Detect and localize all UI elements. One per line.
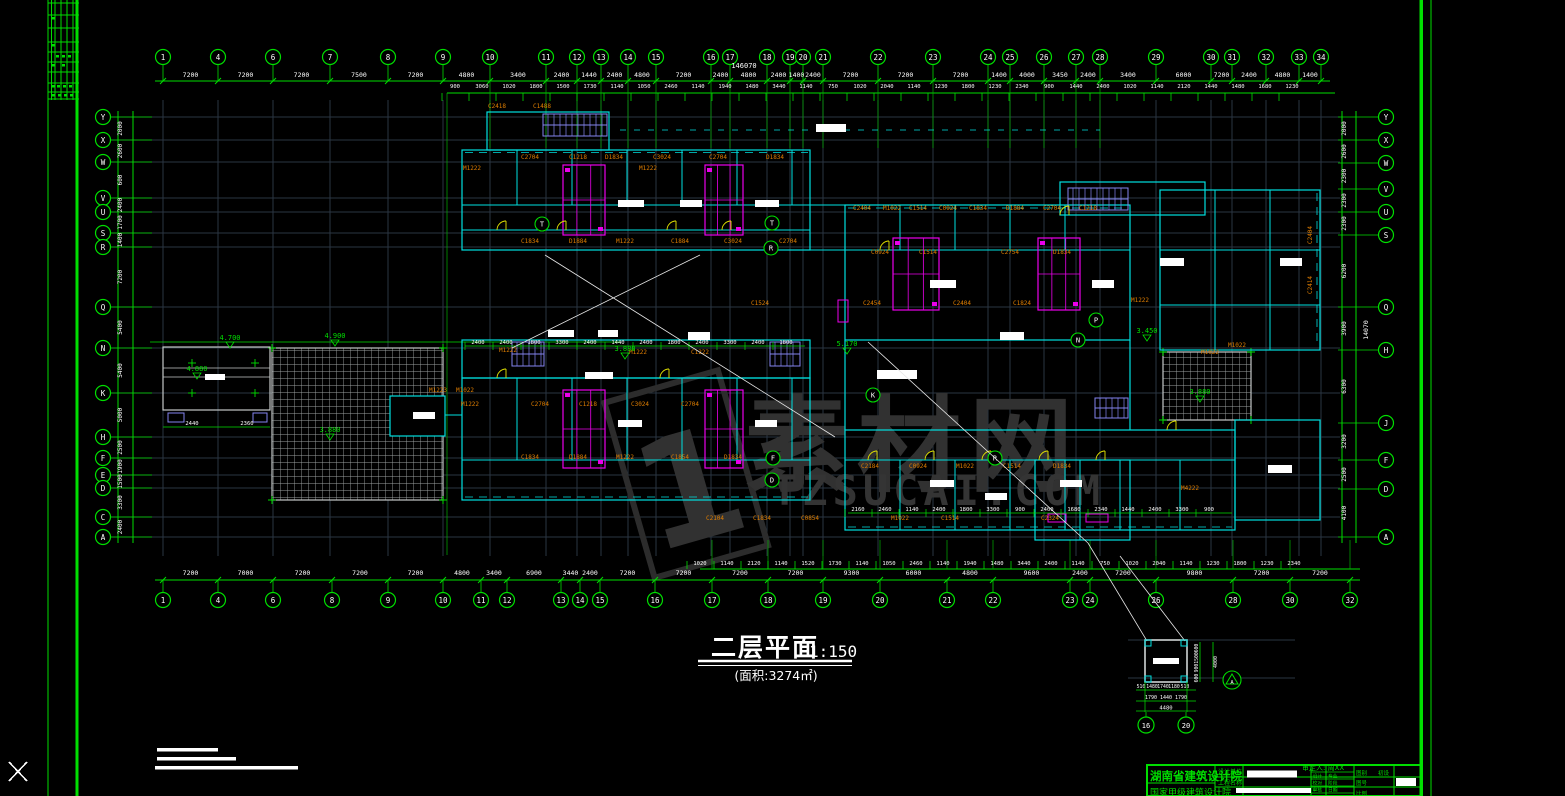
dim-text: 2400 [117,519,124,534]
dim-text: 2400 [607,71,623,79]
dim-text-small: 2440 [185,421,198,427]
door-window-label: M1022 [956,463,974,470]
dim-text: 4800 [459,71,475,79]
dim-text-small: 2400 [932,507,945,513]
dim-text: 2400 [117,197,124,212]
dim-text: 7200 [117,269,124,284]
door-window-label: C0854 [801,515,819,522]
level-mark-text: 3.880 [614,345,635,353]
dim-text: 1440 [581,71,597,79]
dim-text-small: 2340 [1287,561,1300,567]
door-window-label: M1222 [461,401,479,408]
plan-axis-bubble-label: D [770,477,774,485]
door-window-label: M1022 [1228,342,1246,349]
door-window-label: C2704 [779,238,797,245]
schedule-cell-mark [70,94,73,97]
axis-circle-label: 23 [1065,596,1074,605]
door-window-label: C1884 [671,238,689,245]
level-mark-text: 4.900 [324,332,345,340]
dim-text: 4800 [454,569,470,577]
level-mark-text: 3.880 [1189,388,1210,396]
schedule-cell-mark [52,94,55,97]
door-window-label: C1514 [1003,463,1021,470]
dim-text: 9300 [844,569,860,577]
dim-text-small: 1140 [799,84,812,90]
door-window-label: C3024 [631,401,649,408]
axis-circle-label: 32 [1261,53,1270,62]
level-mark-text: 4.880 [186,365,207,373]
core-fixture [736,227,741,231]
dim-text: 3300 [117,495,124,510]
dim-text: 3400 [510,71,526,79]
axis-circle-label: X [1384,136,1389,145]
dim-text: 4800 [1275,71,1291,79]
door-window-label: C1834 [521,454,539,461]
axis-circle-label: A [101,533,106,542]
dim-text-small: 900 [1015,507,1025,513]
schedule-cell-mark [62,55,65,58]
dim-text: 2000 [117,121,124,136]
door-window-label: C1854 [671,454,689,461]
room-label-redaction [585,372,613,379]
dim-text: 7200 [352,569,368,577]
door-window-label: C2184 [861,463,879,470]
dim-text: 2400 [713,71,729,79]
dim-text-small: 1500 [556,84,569,90]
axis-circle-label: K [101,389,106,398]
door-window-label: C0924 [939,205,957,212]
axis-circle-label: 8 [386,53,391,62]
door-window-label: D1834 [1053,463,1071,470]
axis-circle-label: W [101,158,106,167]
dim-text-small: 2360 [240,421,253,427]
dim-text-small: 1020 [693,561,706,567]
dim-text: 4800 [741,71,757,79]
level-mark-text: 3.450 [1136,327,1157,335]
dim-text: 2500 [117,440,124,455]
axis-circle-label: 34 [1316,53,1326,62]
dim-text: 2400 [1241,71,1257,79]
axis-circle-label: 17 [725,53,734,62]
schedule-cell-mark [58,94,61,97]
dim-text-small: 750 [828,84,838,90]
door-window-label: C1834 [969,205,987,212]
axis-circle-label: 20 [798,53,808,62]
dim-text-small: 1800 [1233,561,1246,567]
dim-text-small: 1440 [1069,84,1082,90]
door-window-label: C1218 [1079,205,1097,212]
door-window-label: M1222 [499,347,517,354]
dim-text: 7200 [294,71,310,79]
axis-circle-label: 6 [271,596,276,605]
dim-text: 7200 [620,569,636,577]
door-window-label: C2704 [681,401,699,408]
title-block-cell-label: 日期 [1328,788,1338,794]
core-fixture [598,227,603,231]
axis-circle-label: D [101,484,106,493]
dim-text-small: 900 [1194,664,1200,673]
dim-text: 4800 [634,71,650,79]
axis-circle-label: 18 [762,53,772,62]
detail-axis-label: 20 [1182,722,1190,730]
dim-text: 2500 [1341,467,1348,482]
axis-circle-label: N [101,344,106,353]
dim-text-small: 2400 [751,340,764,346]
dim-text-small: 1940 [718,84,731,90]
door-window-label: C2454 [863,300,881,307]
room-label-redaction [1160,258,1184,266]
door-window-label: C2704 [1043,205,1061,212]
dim-text: 2400 [554,71,570,79]
dim-text: 7200 [1115,569,1131,577]
schedule-cell-mark [52,44,55,47]
schedule-cell-mark [62,64,65,67]
dim-text: 2400 [1080,71,1096,79]
roof-hatch-area [1163,352,1251,420]
note-redaction-bar [157,757,236,761]
dim-text: 1700 [117,215,124,230]
core-fixture [707,393,712,397]
axis-circle-label: 14 [575,596,585,605]
room-label-redaction [1060,480,1082,487]
dim-text: 2400 [582,569,598,577]
dim-text-small: 1800 [667,340,680,346]
title-block-cell-label: 图号 [1356,779,1368,787]
door-window-label: C2754 [1001,249,1019,256]
axis-circle-label: 27 [1071,53,1080,62]
dim-text: 6300 [1341,379,1348,394]
dim-text-small: 600 [1194,644,1200,653]
dim-text-small: 1500 [1194,652,1200,664]
door-window-label: C2414 [1307,276,1314,294]
dim-text-small: 1480 [745,84,758,90]
dim-text-small: 3300 [1175,507,1188,513]
axis-circle-label: 17 [707,596,716,605]
dim-text: 600 [117,174,124,185]
axis-circle-label: V [101,194,106,203]
room-label-redaction [548,330,574,337]
schedule-cell-mark [52,64,55,67]
dim-text-small: 2400 [1096,84,1109,90]
door-window-label: M1022 [456,387,474,394]
dim-text: 1400 [991,71,1007,79]
axis-circle-label: 21 [942,596,951,605]
drawing-title-text: 二层平面 [711,633,819,662]
dim-text: 7200 [843,71,859,79]
room-label-redaction [1268,465,1292,473]
axis-circle-label: J [1384,419,1389,428]
dim-text: 2600 [117,143,124,158]
level-mark-text: 4.700 [219,334,240,342]
dim-text-small: 1800 [779,340,792,346]
dim-text: 7200 [183,71,199,79]
door-window-label: M1022 [1201,349,1219,356]
dim-text: 1400 [1302,71,1318,79]
title-block-redaction [1396,778,1416,786]
plan-axis-bubble-label: P [1094,317,1098,325]
axis-circle-label: 32 [1345,596,1354,605]
axis-circle-label: A [1384,533,1389,542]
room-label-redaction [755,200,779,207]
axis-circle-label: Q [101,303,106,312]
dim-text-small: 1520 [801,561,814,567]
dim-text-small: 1140 [907,84,920,90]
door-window-label: D1834 [724,454,742,461]
dim-text-small: 2400 [695,340,708,346]
dim-text: 6900 [526,569,542,577]
room-label-redaction [930,480,954,487]
axis-circle-label: 12 [572,53,581,62]
axis-circle-label: 28 [1228,596,1238,605]
door-window-label: C1514 [909,205,927,212]
door-window-label: M1223 [429,387,447,394]
core-fixture [565,168,570,172]
axis-circle-label: 24 [983,53,993,62]
axis-circle-label: F [101,454,106,463]
schedule-cell-mark [56,55,59,58]
schedule-cell-mark [52,85,55,88]
dim-text: 1500 [117,474,124,489]
title-block-cell-label: 阶段 [1328,780,1338,787]
dim-text: 7200 [1312,569,1328,577]
axis-circle-label: 26 [1039,53,1049,62]
core-fixture [895,241,900,245]
dim-text: 7200 [183,569,199,577]
dim-text-small: 1440 [1160,695,1172,701]
axis-circle-label: 28 [1095,53,1105,62]
dim-text-small: 2400 [471,340,484,346]
title-block-stage: 初设 [1378,769,1390,777]
dim-text-small: 1800 [961,84,974,90]
axis-circle-label: 18 [763,596,773,605]
dim-text: 4800 [962,569,978,577]
dim-text: 5000 [117,407,124,422]
schedule-cell-mark [57,85,60,88]
axis-circle-label: V [1384,185,1389,194]
axis-circle-label: 1 [161,596,166,605]
dim-text: 1900 [117,459,124,474]
axis-circle-label: 6 [271,53,276,62]
dim-text-small: 1140 [905,507,918,513]
room-label-redaction [618,420,642,427]
dim-text-small: 1800 [529,84,542,90]
dim-text-small: 2340 [1094,507,1107,513]
dim-text: 7200 [295,569,311,577]
door-window-label: C1514 [919,249,937,256]
dim-text: 7200 [408,71,424,79]
schedule-cell-mark [64,94,67,97]
dim-text-small: 2460 [664,84,677,90]
detail-axis-label: 16 [1142,722,1150,730]
title-block-redaction [1236,788,1311,793]
room-label-redaction [598,330,618,337]
door-window-label: M1022 [883,205,901,212]
dim-text: 2400 [805,71,821,79]
dim-text-small: 1730 [583,84,596,90]
dim-text-small: 1140 [936,561,949,567]
door-window-label: C2704 [531,401,549,408]
dim-text-small: 3300 [723,340,736,346]
door-window-label: M1222 [616,238,634,245]
axis-circle-label: 7 [328,53,333,62]
door-window-label: C1488 [533,103,551,110]
schedule-cell-mark [52,17,55,20]
door-window-label: C1834 [521,238,539,245]
dim-text-small: 1440 [1121,507,1134,513]
title-block-redaction [1247,771,1297,778]
axis-circle-label: 30 [1206,53,1216,62]
door-window-label: C2418 [488,103,506,110]
door-window-label: C1834 [753,515,771,522]
dim-text-small: 1940 [963,561,976,567]
dim-text: 2600 [1341,144,1348,159]
axis-circle-label: 24 [1085,596,1095,605]
dim-text-small: 2400 [639,340,652,346]
axis-circle-label: 4 [216,53,221,62]
axis-circle-label: 11 [476,596,485,605]
dim-text-small: 1680 [1067,507,1080,513]
dim-text-small: 1790 [1145,695,1157,701]
dim-text: 4100 [1341,505,1348,520]
level-mark-text: 3.880 [319,426,340,434]
axis-circle-label: 19 [818,596,827,605]
dim-text-small: 1020 [502,84,515,90]
dim-text-small: 1020 [1123,84,1136,90]
dim-text-small: 4000 [1213,656,1219,668]
dim-text: 7200 [732,569,748,577]
axis-circle-label: F [1384,456,1389,465]
room-label-redaction [1000,332,1024,340]
door-window-label: D1884 [569,238,587,245]
dim-text-small: 2120 [1177,84,1190,90]
dim-text-small: 4480 [1159,706,1172,712]
title-block-cell-label: 设计单位 [1218,768,1242,776]
dim-text-small: 3060 [475,84,488,90]
drawing-area-text: (面积:3274㎡) [734,668,817,683]
axis-circle-label: 13 [556,596,565,605]
axis-circle-label: 13 [596,53,605,62]
dim-text-small: 1140 [610,84,623,90]
dim-text-small: 2160 [851,507,864,513]
dim-text-small: 1790 [1175,695,1187,701]
dim-text-small: 3300 [986,507,999,513]
door-window-label: M1222 [616,454,634,461]
dim-text: 2400 [1072,569,1088,577]
room-label-redaction [930,280,956,288]
dim-text: 2300 [1341,193,1348,208]
dim-text: 7000 [238,569,254,577]
door-window-label: D1834 [605,154,623,161]
axis-circle-label: 10 [438,596,448,605]
room-label-redaction [413,412,435,419]
door-window-label: M1222 [1131,297,1149,304]
axis-circle-label: C [101,513,106,522]
cad-drawing-canvas: 1 素材网 TZSUCAI.COM 1467891011121314151617… [0,0,1565,796]
dim-text-small: 600 [1194,674,1200,683]
door-window-label: C1218 [569,154,587,161]
dim-text-small: 3440 [1017,561,1030,567]
door-window-label: C3024 [724,238,742,245]
dim-text-small: 1140 [1071,561,1084,567]
axis-circle-label: W [1384,159,1389,168]
axis-circle-label: 10 [485,53,495,62]
door-window-label: C2104 [706,515,724,522]
axis-circle-label: S [1384,231,1389,240]
schedule-cell-mark [63,85,66,88]
plan-axis-bubble-label: N [1076,337,1080,345]
note-redaction-bar [155,766,298,770]
dim-text: 7200 [238,71,254,79]
axis-circle-label: U [1384,208,1389,217]
dim-text-small: 1230 [1285,84,1298,90]
room-label-redaction [618,200,644,207]
schedule-cell-mark [69,85,72,88]
dim-text: 6000 [906,569,922,577]
axis-circle-label: U [101,208,106,217]
dim-text: 7200 [898,71,914,79]
door-window-label: C2404 [853,205,871,212]
room-label-redaction [680,200,702,207]
dim-text: 3400 [1120,71,1136,79]
dim-text: 2300 [1341,168,1348,183]
dim-text: 2000 [1341,121,1348,136]
axis-circle-label: 15 [651,53,660,62]
door-window-label: D1834 [1053,249,1071,256]
dim-text-small: 1480 [990,561,1003,567]
dim-total-text: 146070 [731,62,756,70]
core-fixture [932,302,937,306]
dim-text-small: 2460 [909,561,922,567]
note-redaction-bar [157,748,218,752]
dim-text: 5400 [117,363,124,378]
room-label-redaction [688,332,710,340]
dim-text-small: 1230 [1206,561,1219,567]
institute-subline: 国家甲级建筑设计院 [1150,787,1231,796]
axis-circle-label: 31 [1227,53,1236,62]
axis-circle-label: 20 [875,596,885,605]
axis-circle-label: 4 [216,596,221,605]
dim-text-small: 900 [1044,84,1054,90]
dim-text-small: 1440 [1204,84,1217,90]
dim-text-small: 1480 [1231,84,1244,90]
axis-circle-label: Y [101,113,106,122]
dim-text: 3400 [486,569,502,577]
title-block-cell-label: 工程名称 [1218,779,1242,787]
dim-text-small: 1730 [828,561,841,567]
axis-circle-label: Y [1384,113,1389,122]
dim-text-small: 1140 [1179,561,1192,567]
dim-text-small: 900 [1204,507,1214,513]
axis-circle-label: 16 [650,596,660,605]
dim-text-small: 2040 [880,84,893,90]
axis-circle-label: 16 [706,53,716,62]
dim-text: 7200 [676,71,692,79]
axis-circle-label: 9 [386,596,391,605]
dim-text-small: 1140 [855,561,868,567]
room-label-redaction [816,124,846,132]
level-mark-text: 5.170 [836,340,857,348]
axis-circle-label: 12 [502,596,511,605]
axis-circle-label: 22 [988,596,997,605]
dim-text-small: 2040 [1152,561,1165,567]
dim-text-small: 1140 [1150,84,1163,90]
axis-circle-label: 30 [1285,596,1295,605]
door-window-label: C1218 [579,401,597,408]
dim-text: 2400 [771,71,787,79]
axis-circle-label: 15 [595,596,604,605]
dim-text-small: 2400 [1148,507,1161,513]
title-block-cell-label: 审核 [1313,787,1323,794]
